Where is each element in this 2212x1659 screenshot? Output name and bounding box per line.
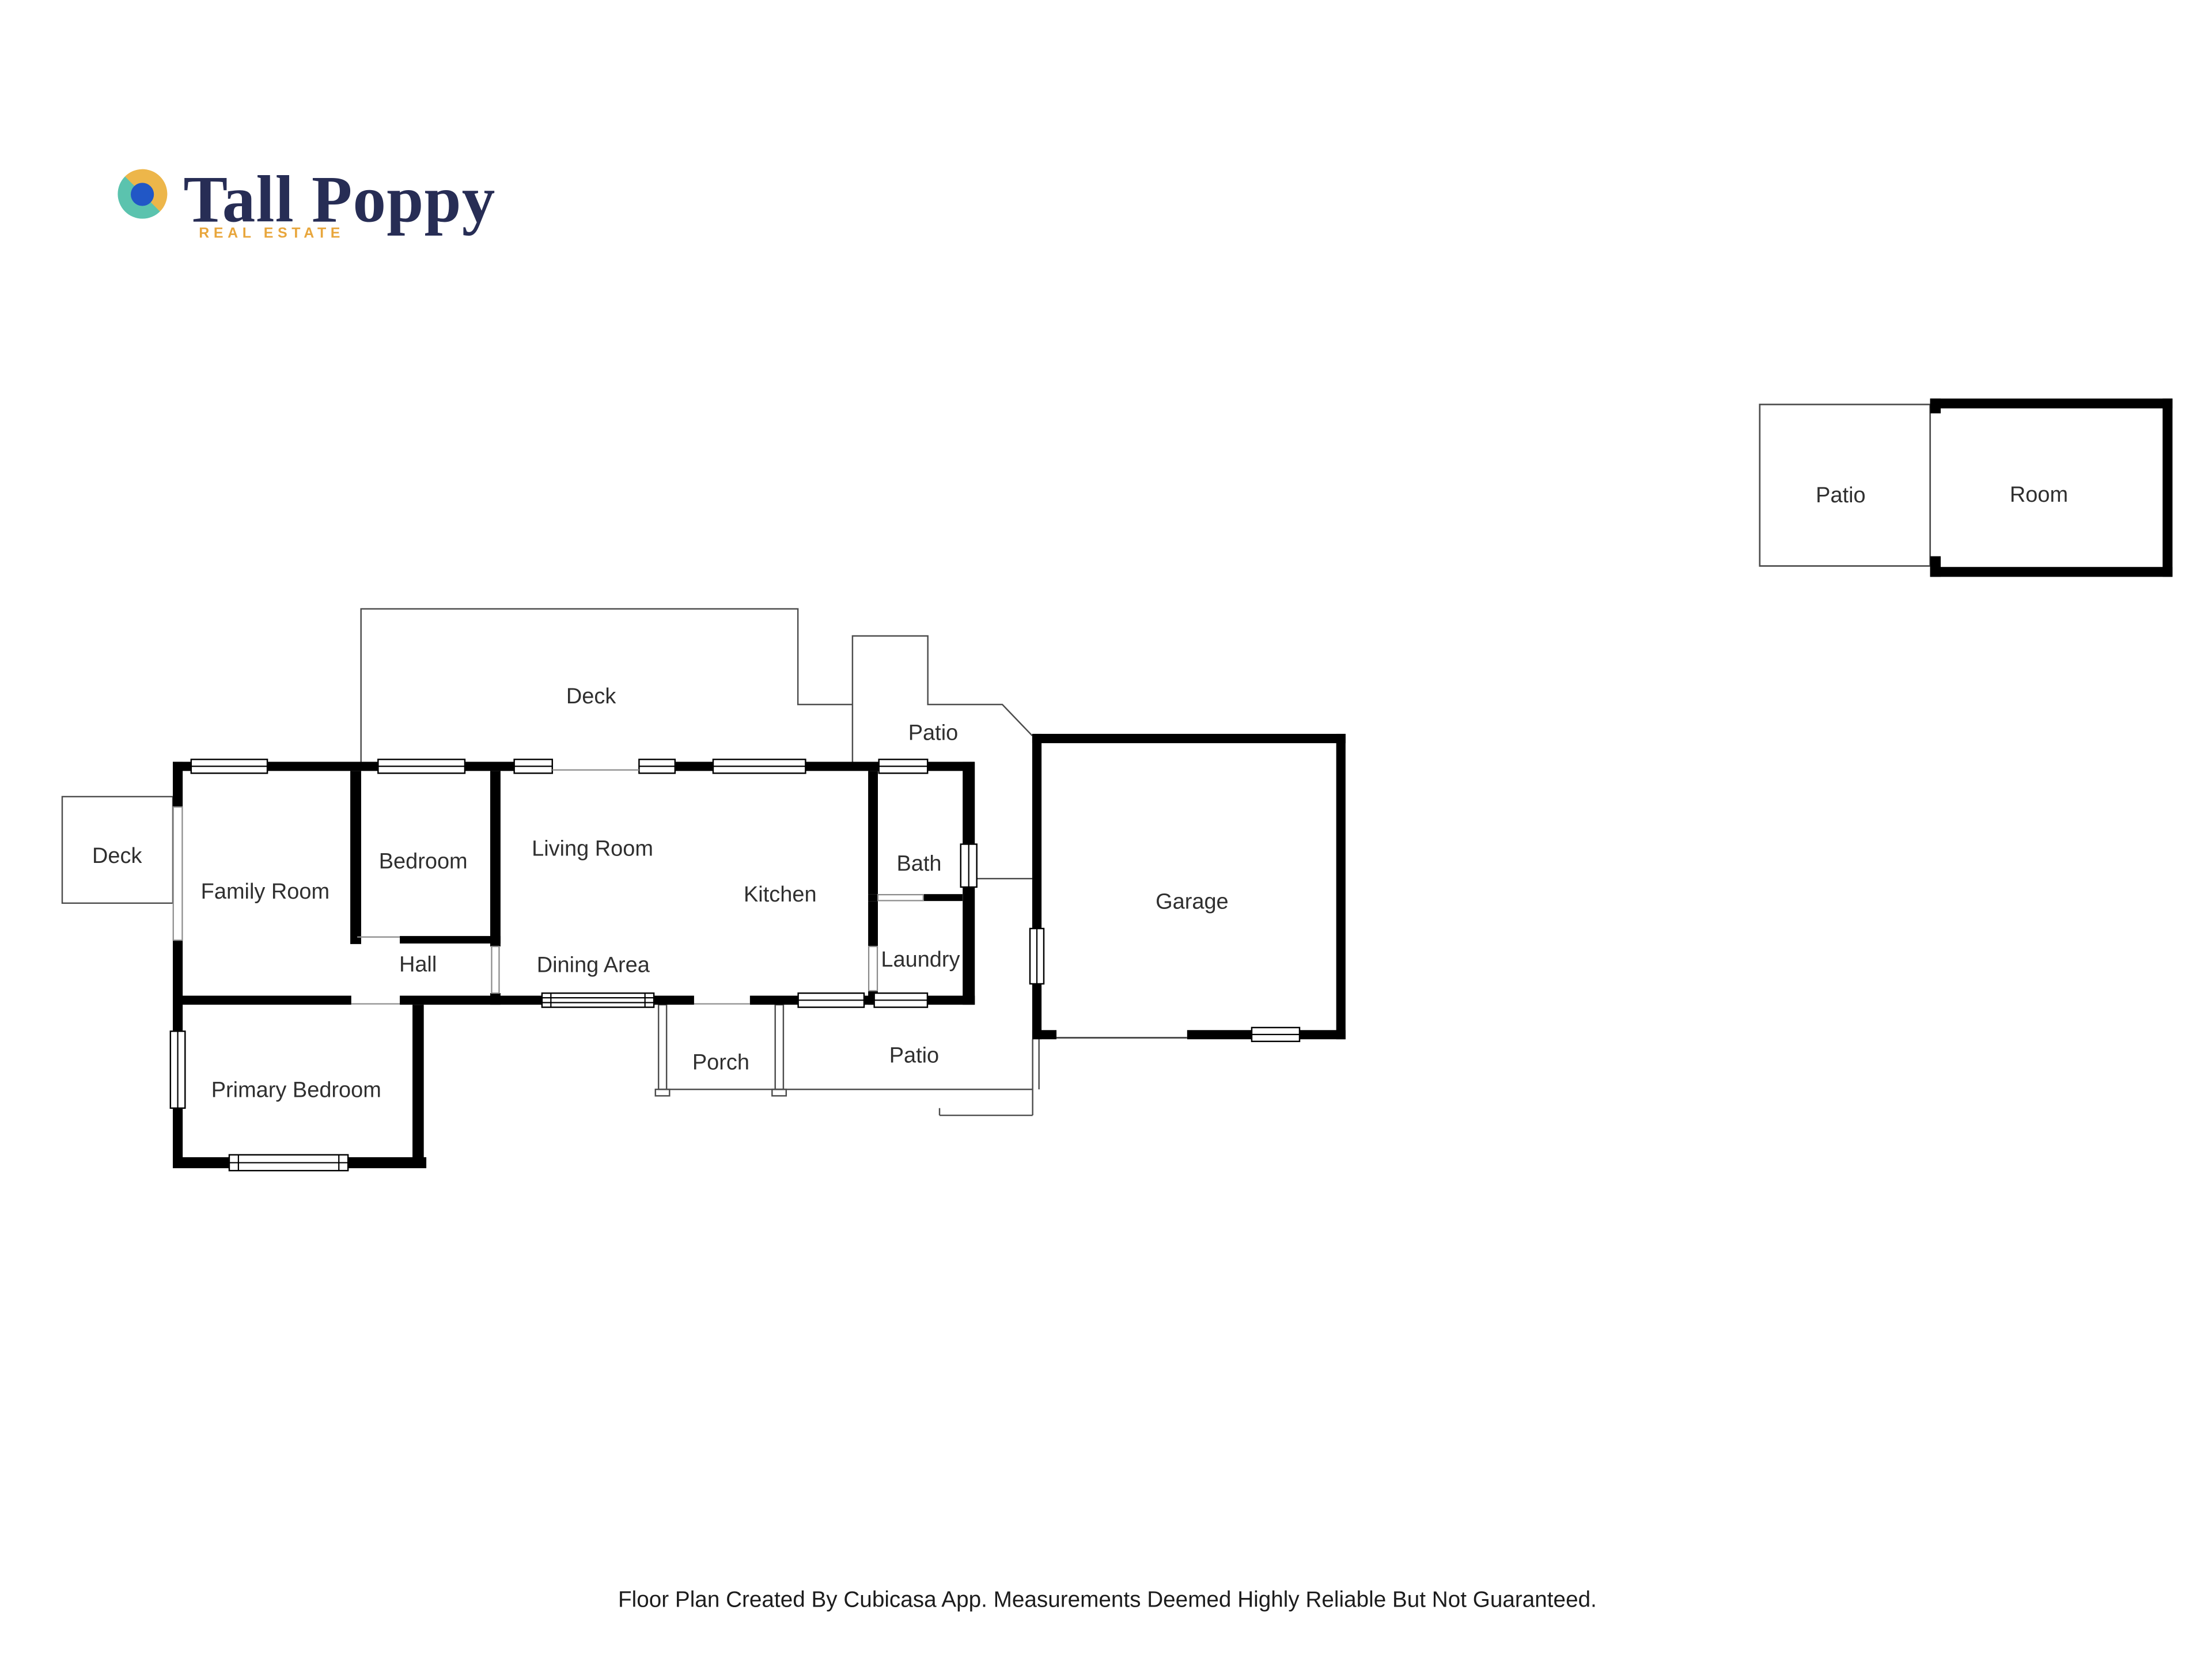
room-label-outbuilding-patio: Patio: [1816, 483, 1865, 507]
footer-disclaimer: Floor Plan Created By Cubicasa App. Meas…: [618, 1587, 1597, 1612]
porch-post-left-foot: [656, 1089, 669, 1096]
logo-icon-blue-core: [131, 183, 154, 206]
room-label-bath: Bath: [896, 851, 941, 876]
room-label-hall: Hall: [399, 952, 437, 976]
window-family-room-top: [191, 759, 267, 773]
room-label-family-room: Family Room: [201, 880, 329, 904]
room-label-deck-left: Deck: [92, 844, 142, 868]
window-living-left-top: [514, 759, 552, 773]
porch-post-right-foot: [772, 1089, 786, 1096]
window-kitchen-bottom-2: [874, 993, 927, 1007]
room-label-laundry: Laundry: [881, 948, 960, 972]
room-label-deck-upper: Deck: [566, 684, 616, 709]
room-labels: Deck Patio Deck Family Room Bedroom Livi…: [92, 483, 2068, 1102]
window-bath-right: [961, 844, 977, 887]
garage-walls: [1032, 734, 1346, 1039]
room-label-patio-lower: Patio: [889, 1043, 939, 1067]
logo-tagline: REAL ESTATE: [199, 225, 344, 241]
window-bath-top: [879, 759, 927, 773]
room-label-patio-upper: Patio: [908, 721, 958, 745]
room-label-bedroom: Bedroom: [379, 850, 468, 874]
room-label-dining-area: Dining Area: [537, 953, 650, 978]
porch-post-right: [775, 1005, 783, 1089]
room-label-primary-bedroom: Primary Bedroom: [211, 1078, 381, 1102]
logo: Tall Poppy REAL ESTATE: [118, 162, 495, 241]
window-dining-bottom: [542, 993, 654, 1007]
window-primary-bedroom-bottom: [229, 1155, 348, 1171]
window-kitchen-top: [713, 759, 805, 773]
floor-plan-canvas: Tall Poppy REAL ESTATE: [0, 0, 2212, 1659]
window-bedroom-top: [378, 759, 465, 773]
room-label-living-room: Living Room: [532, 837, 653, 861]
outdoor-outlines: [62, 609, 1039, 1115]
windows: [171, 759, 1300, 1171]
window-living-right-top: [639, 759, 675, 773]
logo-icon: [118, 169, 167, 219]
window-kitchen-bottom-1: [798, 993, 864, 1007]
window-garage-bottom: [1252, 1028, 1300, 1041]
window-primary-bedroom-left: [171, 1031, 185, 1108]
room-label-outbuilding-room: Room: [2010, 483, 2068, 507]
patio-steps: [940, 1039, 1039, 1115]
room-label-kitchen: Kitchen: [744, 882, 817, 907]
porch-post-left: [658, 1005, 666, 1089]
window-garage-left: [1030, 929, 1044, 984]
room-label-garage: Garage: [1156, 889, 1229, 914]
room-label-porch: Porch: [692, 1051, 749, 1075]
